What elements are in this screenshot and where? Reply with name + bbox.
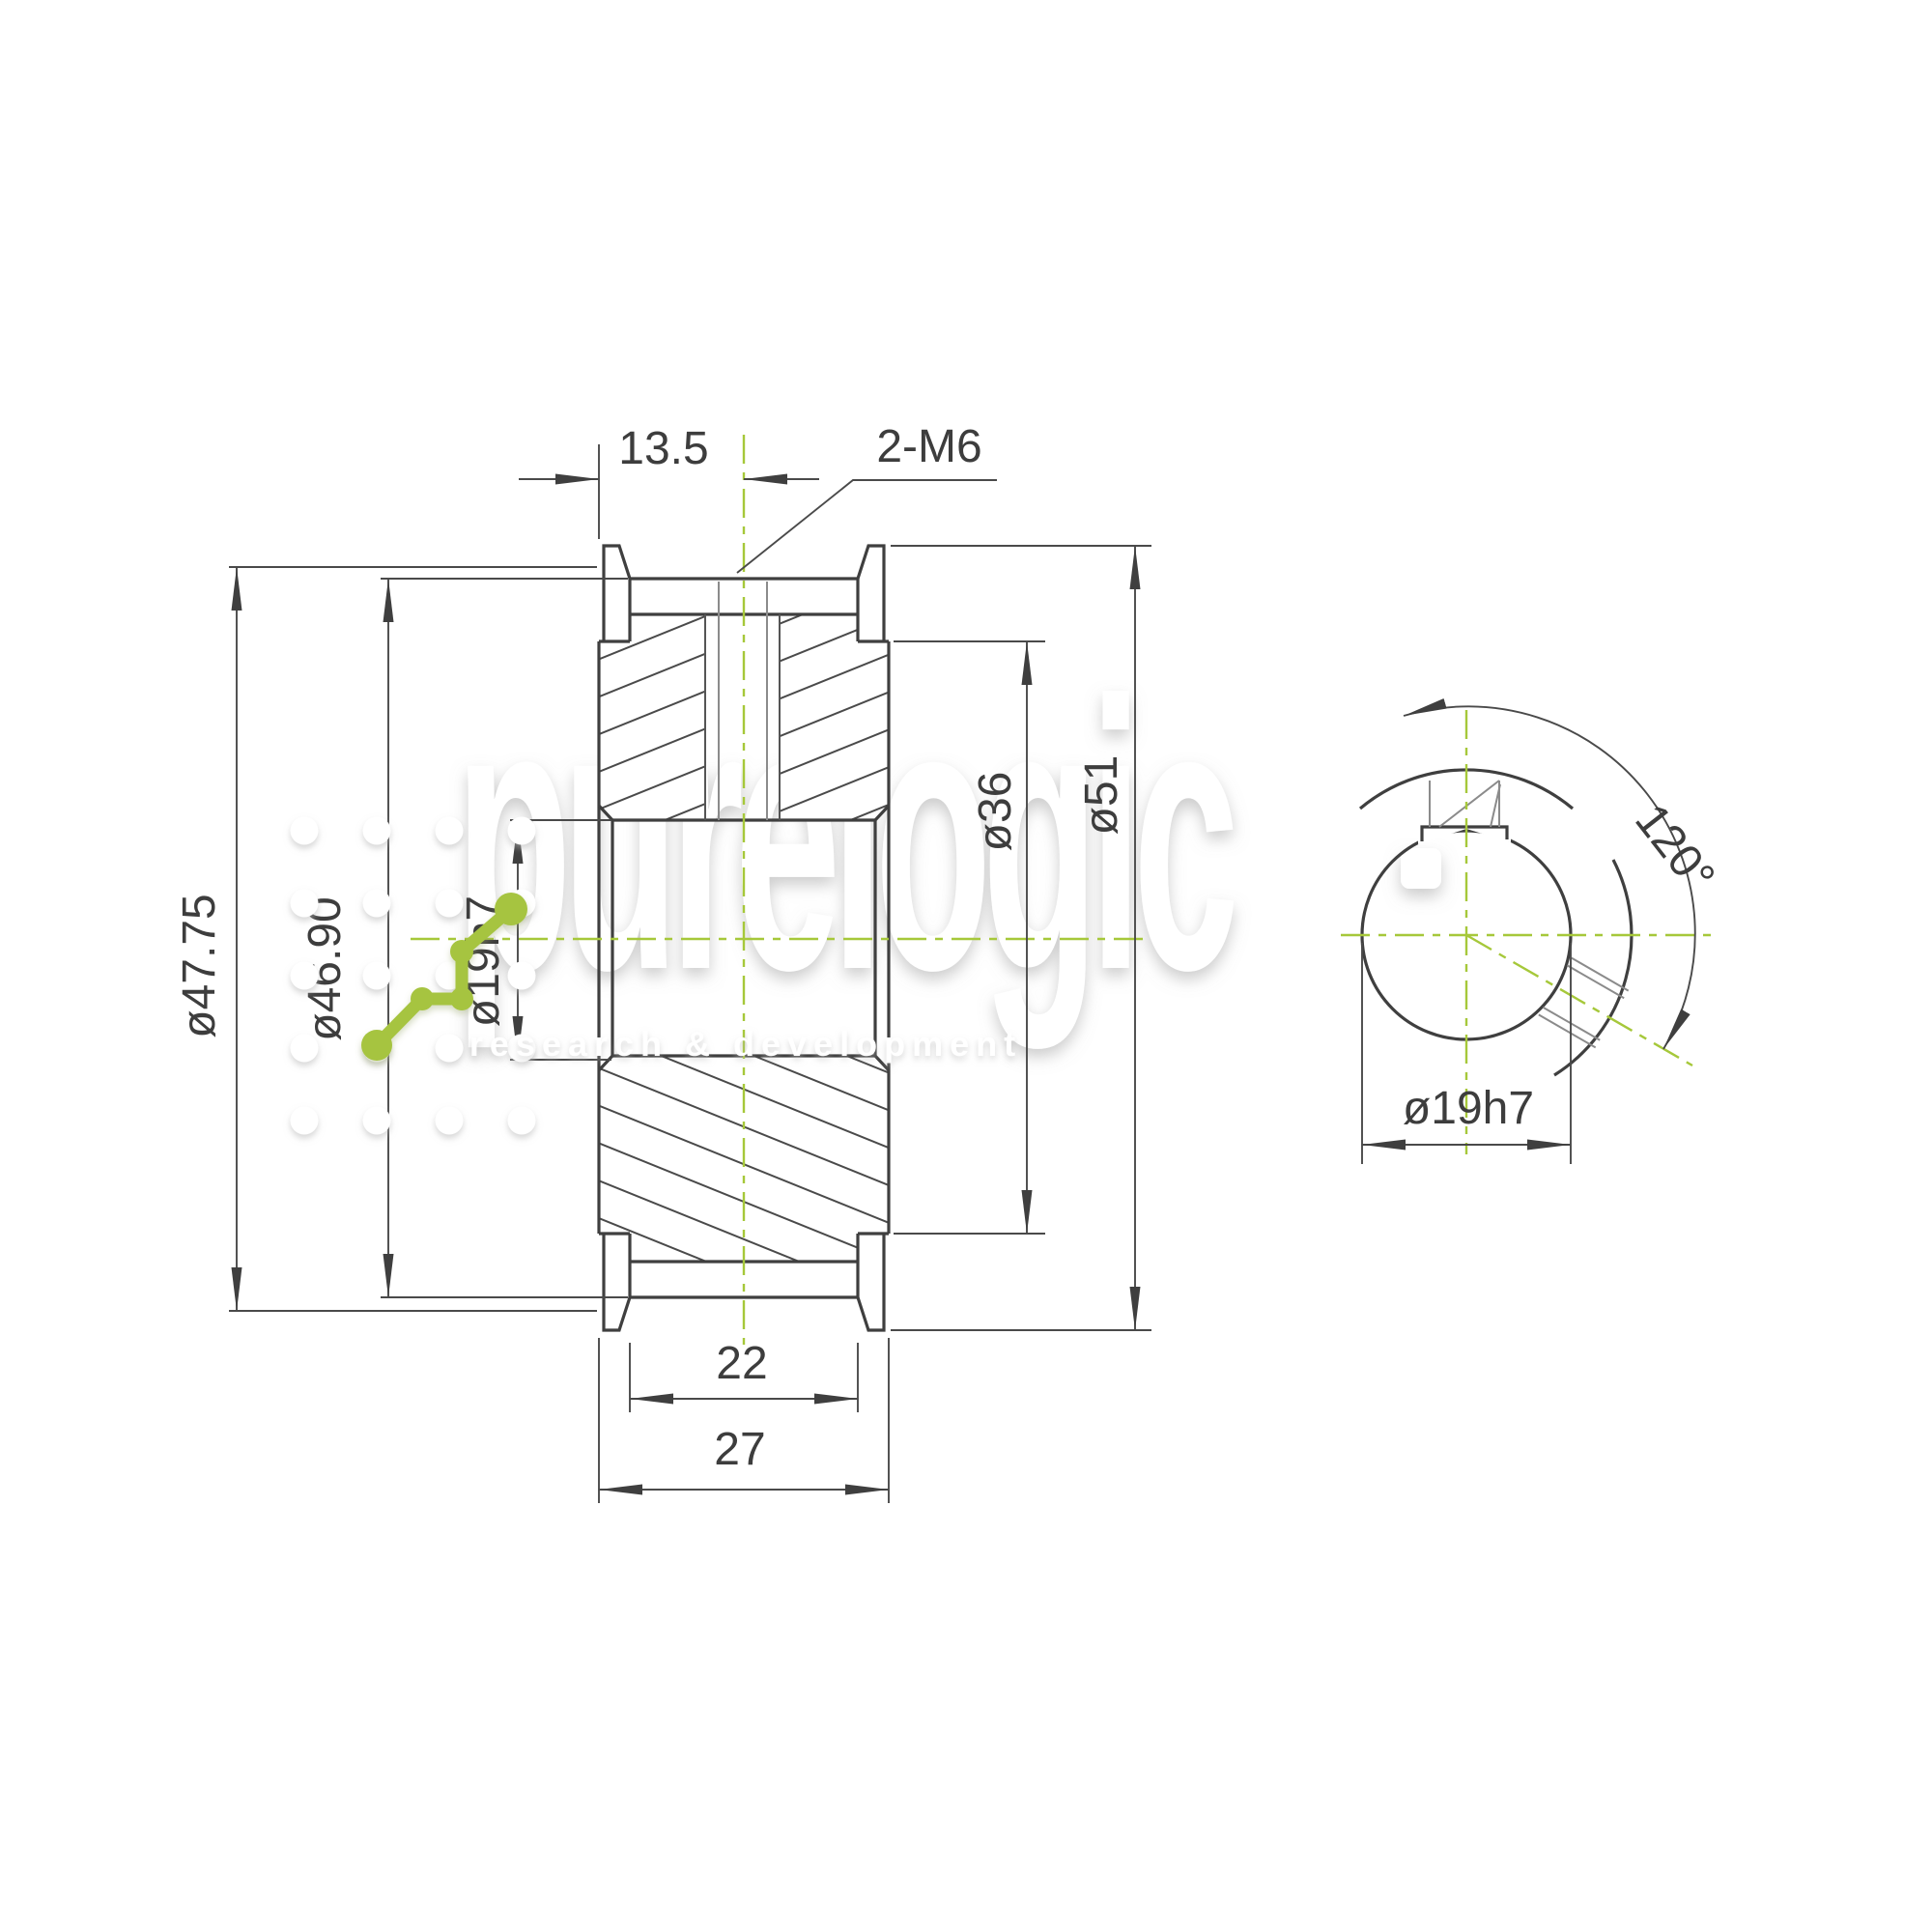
dim-22-label: 22 bbox=[716, 1338, 767, 1389]
watermark-tagline-text: research & development bbox=[469, 1024, 1022, 1064]
dim-27-label: 27 bbox=[714, 1424, 765, 1475]
dia-19h7-end-label: ø19h7 bbox=[1403, 1083, 1534, 1134]
watermark-square-dot bbox=[1401, 848, 1441, 889]
dia-47-75-label: ø47.75 bbox=[174, 894, 225, 1037]
dim-13-5-label: 13.5 bbox=[618, 423, 708, 474]
thread-label: 2-M6 bbox=[876, 421, 981, 472]
pulley-drawing-svg: purelogic bbox=[0, 0, 1932, 1932]
dia-51-label: ø51 bbox=[1076, 755, 1127, 836]
dia-36-label: ø36 bbox=[970, 772, 1021, 852]
technical-drawing-page: purelogic bbox=[0, 0, 1932, 1932]
